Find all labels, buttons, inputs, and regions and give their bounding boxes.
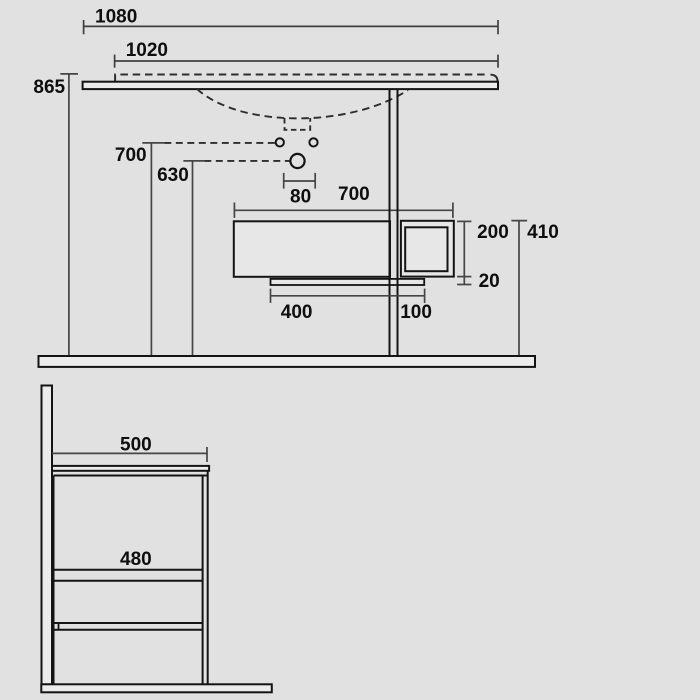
svg-text:700: 700 xyxy=(115,145,147,166)
svg-text:700: 700 xyxy=(338,184,370,205)
svg-text:400: 400 xyxy=(281,302,313,323)
svg-text:100: 100 xyxy=(400,302,432,323)
svg-text:20: 20 xyxy=(479,271,500,292)
svg-text:480: 480 xyxy=(120,549,152,570)
svg-text:500: 500 xyxy=(120,434,152,455)
svg-text:1020: 1020 xyxy=(126,40,168,61)
svg-text:1080: 1080 xyxy=(95,7,137,28)
svg-text:80: 80 xyxy=(290,186,311,207)
svg-text:865: 865 xyxy=(33,77,65,98)
svg-text:630: 630 xyxy=(157,165,189,186)
svg-text:410: 410 xyxy=(527,222,559,243)
svg-text:200: 200 xyxy=(477,222,509,243)
